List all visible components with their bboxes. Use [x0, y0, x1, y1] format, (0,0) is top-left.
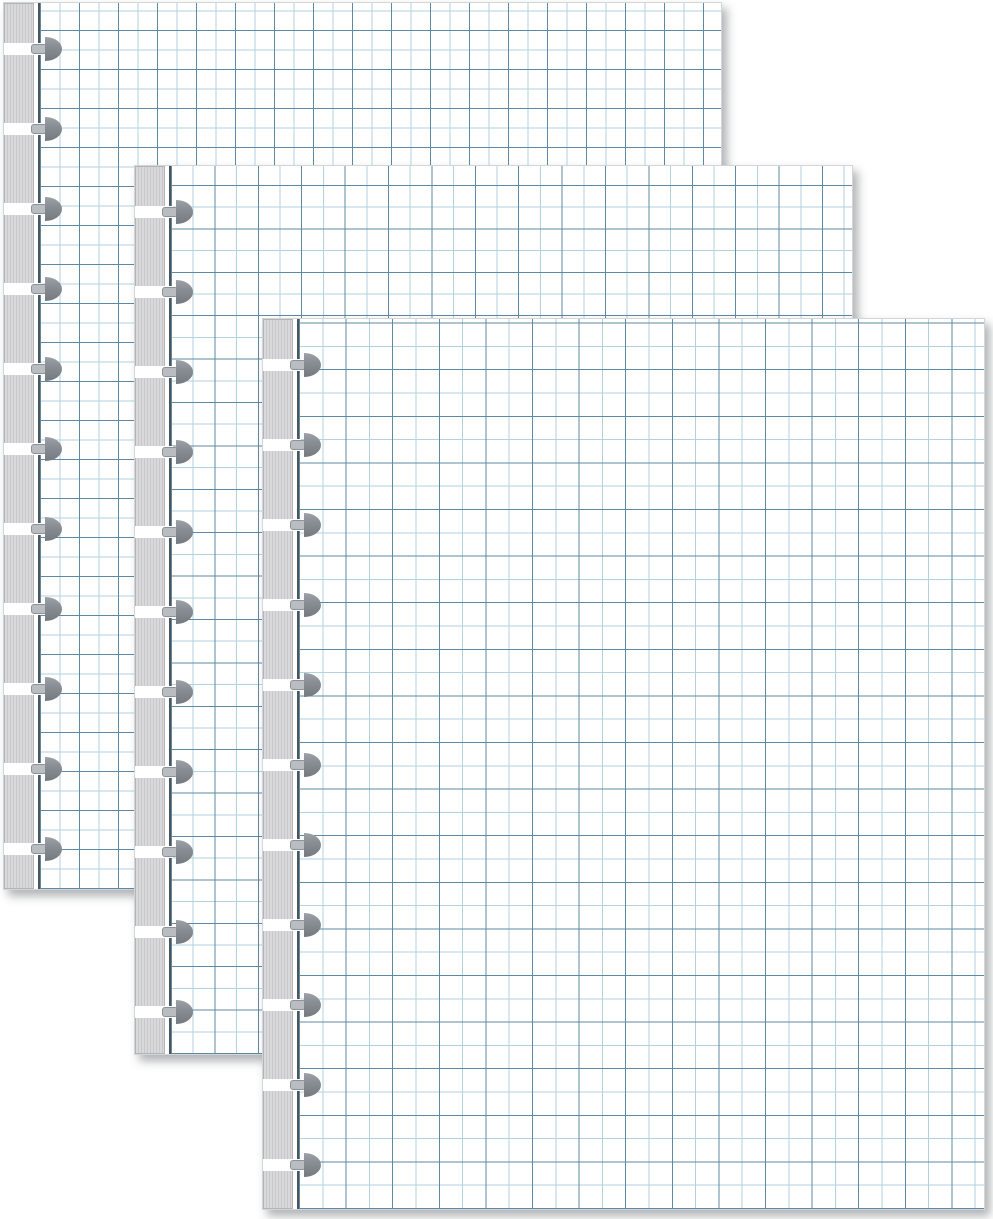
product-photo [0, 0, 993, 1219]
graph-paper-sheet-front [262, 318, 985, 1210]
grid-paper-area [297, 319, 984, 1209]
